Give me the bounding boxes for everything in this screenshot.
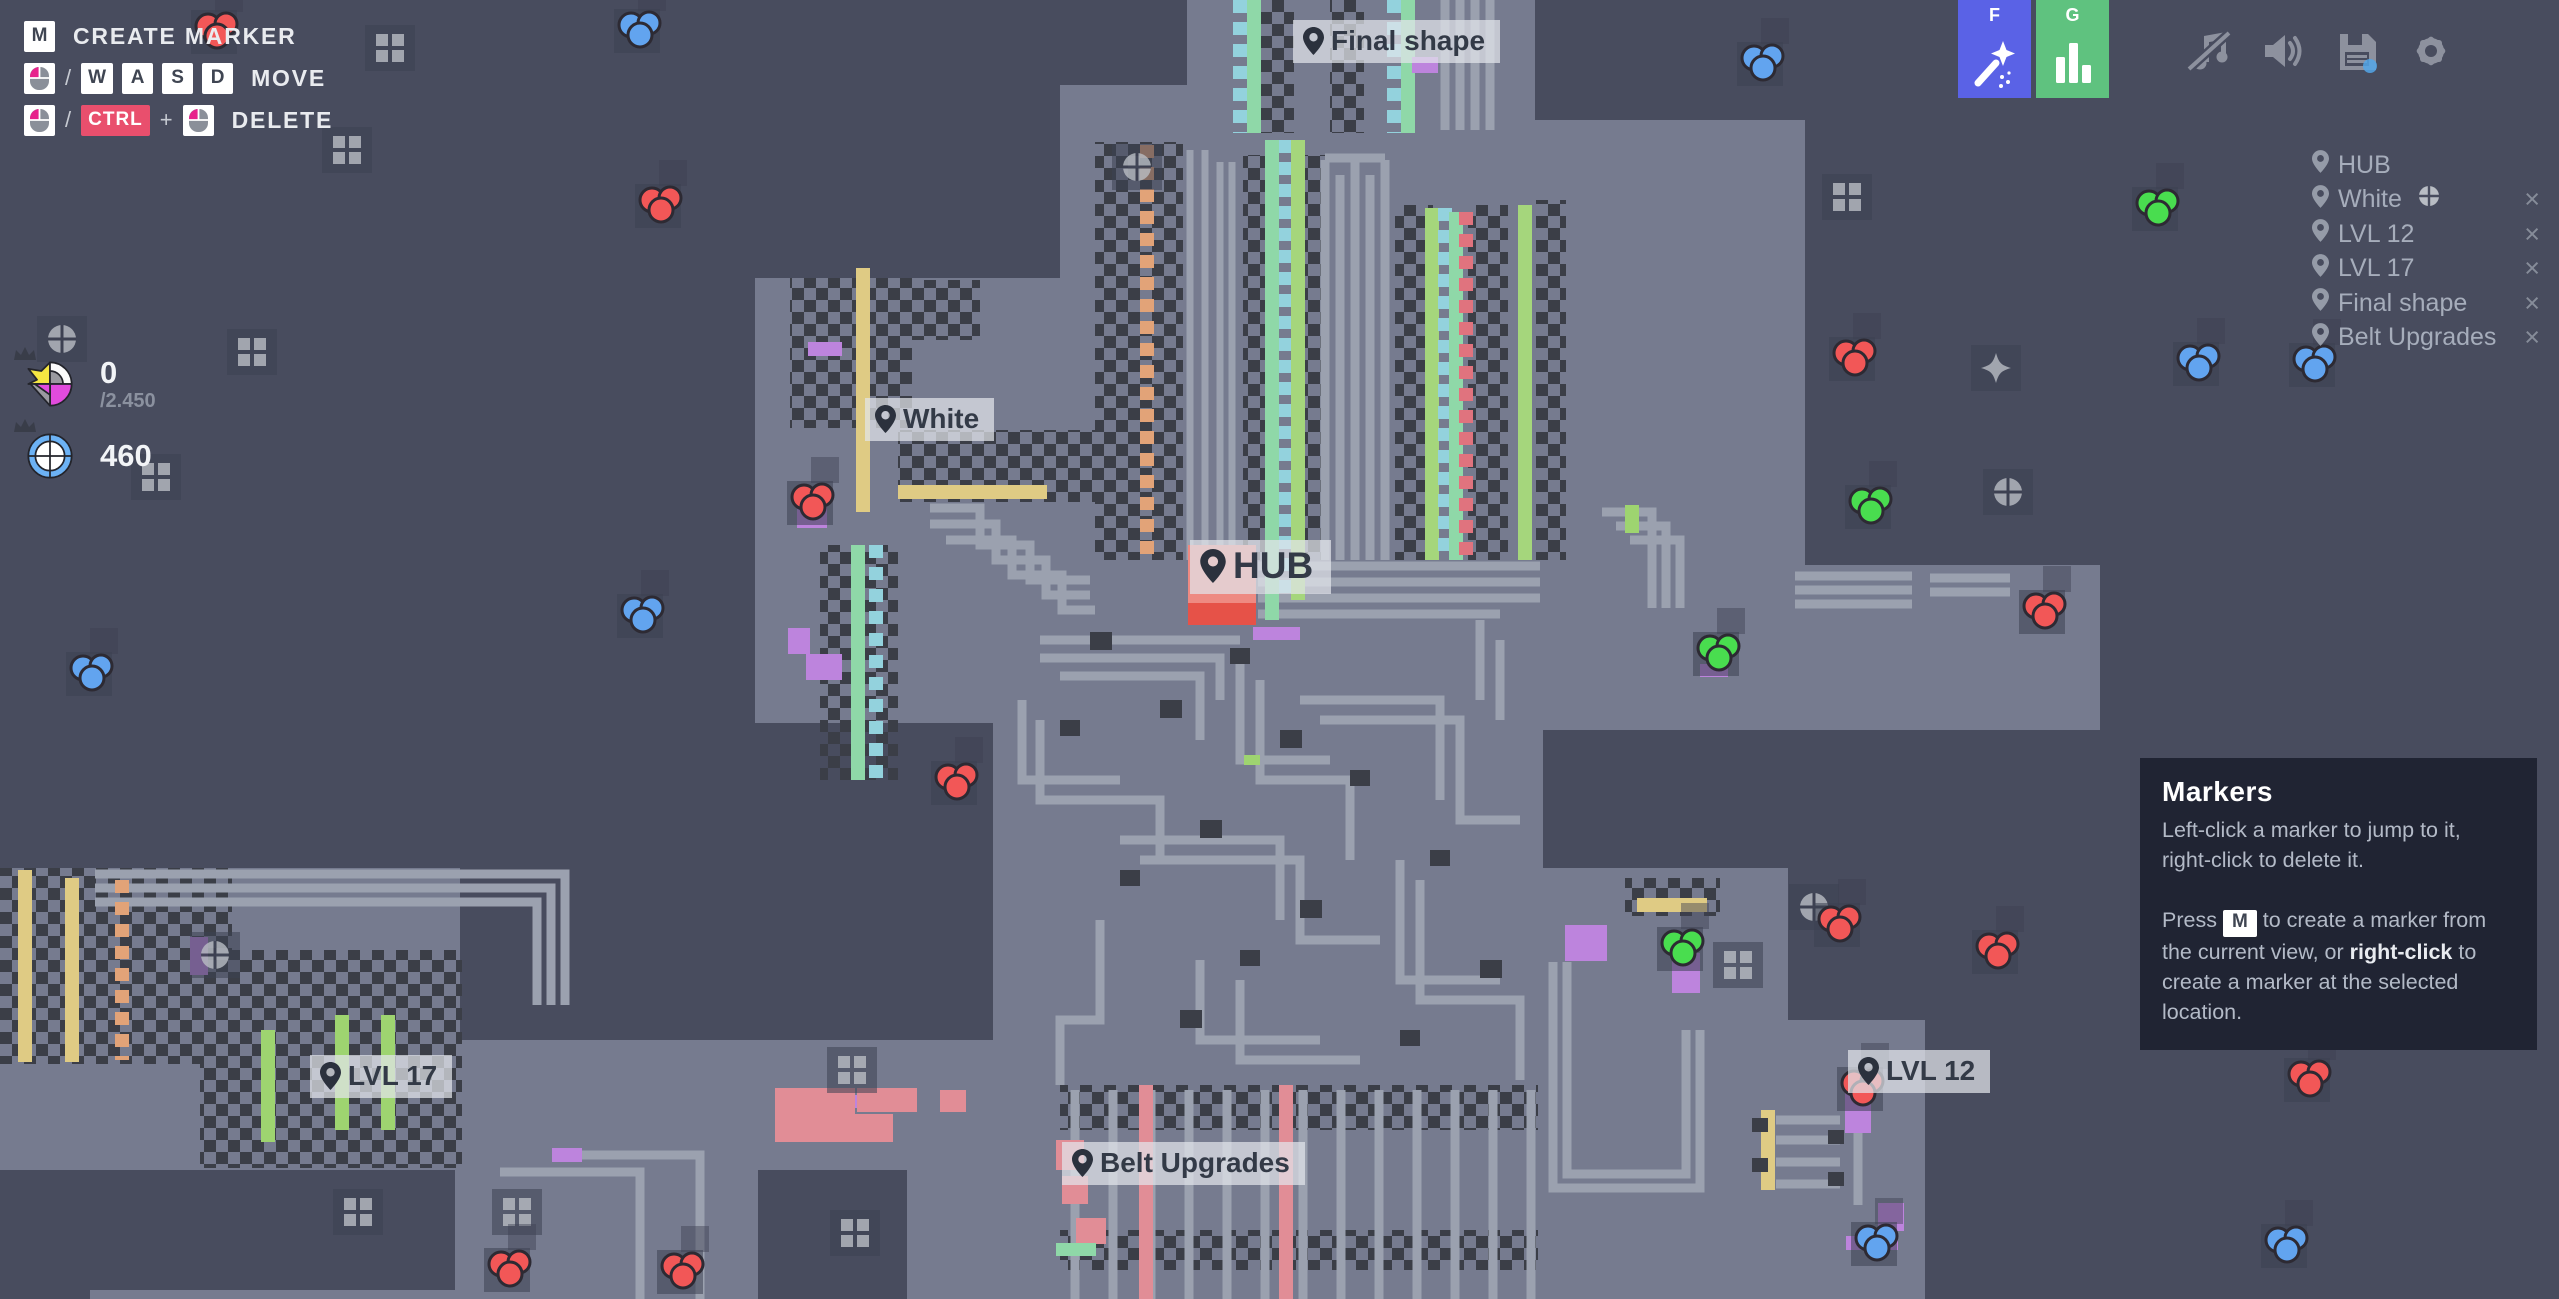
mouse-button-icon <box>24 105 55 136</box>
hint-separator: / <box>65 65 71 91</box>
statistics-button[interactable]: G <box>2036 0 2109 98</box>
map-marker-layer: Final shapeWhiteHUBLVL 17LVL 12Belt Upgr… <box>0 0 2559 1299</box>
marker-list-item-final-shape[interactable]: Final shape× <box>2312 286 2540 321</box>
marker-list-item-white[interactable]: White× <box>2312 183 2540 218</box>
marker-pin-icon <box>2312 185 2329 215</box>
m-keycap: M <box>2223 910 2257 937</box>
crown-icon <box>12 418 38 434</box>
marker-list-item-lvl-12[interactable]: LVL 12× <box>2312 217 2540 252</box>
hint-row-delete: /CTRL+DELETE <box>24 104 333 136</box>
marker-list-item-hub[interactable]: HUB <box>2312 148 2540 183</box>
blueprint-shape-icon <box>24 430 76 482</box>
marker-label: HUB <box>2338 151 2391 180</box>
map-marker-label-final-shape[interactable]: Final shape <box>1293 20 1500 63</box>
hint-label: CREATE MARKER <box>73 23 297 50</box>
pinned-shape-count: 0 <box>100 356 156 390</box>
level-shape-icon <box>24 358 76 410</box>
delete-marker-button[interactable]: × <box>2524 221 2540 248</box>
keycap-s: S <box>162 63 193 94</box>
settings-icon[interactable] <box>2408 28 2454 74</box>
waypoints-wand-button[interactable]: F <box>1958 0 2031 98</box>
mouse-button-icon <box>183 105 214 136</box>
wand-hotkey-label: F <box>1989 5 2000 27</box>
map-marker-label-belt-upgrades[interactable]: Belt Upgrades <box>1062 1142 1305 1185</box>
marker-label: LVL 17 <box>2338 254 2414 283</box>
blueprint-count: 460 <box>100 439 152 473</box>
keycap-w: W <box>81 63 113 94</box>
delete-marker-button[interactable]: × <box>2524 186 2540 213</box>
hint-row-create-marker: MCREATE MARKER <box>24 20 333 52</box>
pinned-level-shape[interactable]: 0 /2.450 <box>24 356 156 412</box>
map-marker-label-lvl-12[interactable]: LVL 12 <box>1848 1050 1990 1093</box>
topbar-icons <box>2186 28 2454 74</box>
hint-separator: / <box>65 107 71 133</box>
delete-marker-button[interactable]: × <box>2524 324 2540 351</box>
keycap-m: M <box>24 21 55 52</box>
crown-icon <box>12 346 38 362</box>
marker-label: Belt Upgrades <box>2338 323 2496 352</box>
topbar-hotkey-buttons: F G <box>1958 0 2109 98</box>
mouse-button-icon <box>24 63 55 94</box>
map-marker-label-lvl-17[interactable]: LVL 17 <box>310 1055 452 1098</box>
marker-pin-icon <box>2312 219 2329 249</box>
delete-marker-button[interactable]: × <box>2524 290 2540 317</box>
hint-row-move: /WASDMOVE <box>24 62 333 94</box>
tooltip-title: Markers <box>2162 772 2515 811</box>
marker-pin-icon <box>2312 150 2329 180</box>
marker-list-item-lvl-17[interactable]: LVL 17× <box>2312 252 2540 287</box>
hint-label: DELETE <box>232 107 334 134</box>
tooltip-line1: Left-click a marker to jump to it, right… <box>2162 815 2515 875</box>
map-marker-label-white[interactable]: White <box>865 398 994 441</box>
keycap-d: D <box>202 63 233 94</box>
magic-wand-icon <box>1970 35 2020 91</box>
stats-hotkey-label: G <box>2065 5 2079 27</box>
marker-list: HUBWhite×LVL 12×LVL 17×Final shape×Belt … <box>2312 148 2540 355</box>
marker-label: White <box>2338 185 2402 214</box>
save-icon[interactable] <box>2334 28 2380 74</box>
hotkey-hints: MCREATE MARKER/WASDMOVE/CTRL+DELETE <box>24 20 333 136</box>
marker-pin-icon <box>2312 254 2329 284</box>
marker-pin-icon <box>2312 288 2329 318</box>
marker-list-item-belt-upgrades[interactable]: Belt Upgrades× <box>2312 321 2540 356</box>
map-marker-label-hub[interactable]: HUB <box>1190 540 1331 594</box>
marker-label: LVL 12 <box>2338 220 2414 249</box>
keycap-a: A <box>122 63 153 94</box>
pinned-blueprint-shape[interactable]: 460 <box>24 430 156 482</box>
hint-separator: + <box>160 107 173 133</box>
pinned-shapes: 0 /2.450 460 <box>24 356 156 482</box>
pinned-shape-goal: /2.450 <box>100 390 156 412</box>
delete-marker-button[interactable]: × <box>2524 255 2540 282</box>
bar-chart-icon <box>2048 35 2098 91</box>
music-muted-icon[interactable] <box>2186 28 2232 74</box>
marker-label: Final shape <box>2338 289 2467 318</box>
marker-shape-icon <box>2411 184 2441 215</box>
hint-label: MOVE <box>251 65 326 92</box>
keycap-ctrl: CTRL <box>81 105 150 136</box>
marker-pin-icon <box>2312 323 2329 353</box>
tooltip-line2: Press M to create a marker from the curr… <box>2162 905 2515 1027</box>
markers-tooltip: Markers Left-click a marker to jump to i… <box>2140 758 2537 1050</box>
volume-icon[interactable] <box>2260 28 2306 74</box>
